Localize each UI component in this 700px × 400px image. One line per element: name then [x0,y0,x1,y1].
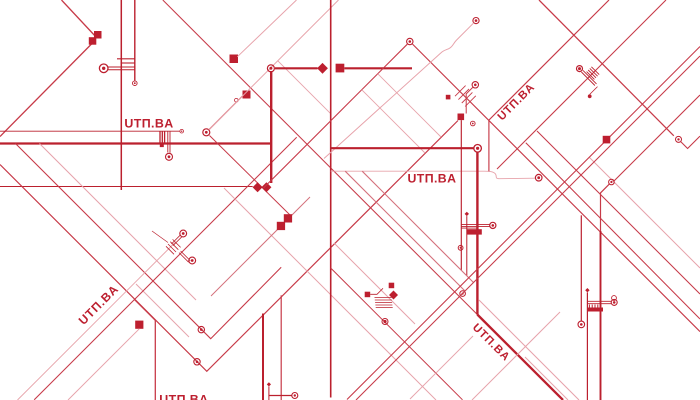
svg-text:UTΠ.BA: UTΠ.BA [408,172,457,186]
svg-text:UTΠ.BA: UTΠ.BA [159,392,208,400]
svg-text:UTΠ.BA: UTΠ.BA [124,117,173,131]
